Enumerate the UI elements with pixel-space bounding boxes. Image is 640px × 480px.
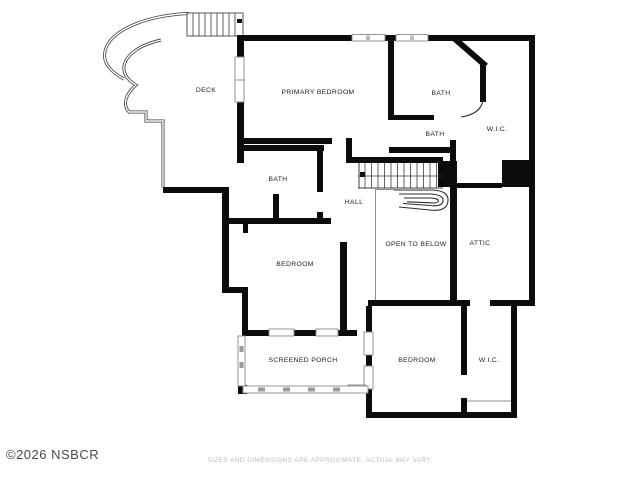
deck-stairs — [187, 13, 243, 36]
floorplan-drawing: DECK PRIMARY BEDROOM BATH W.I.C. BATH BA… — [0, 0, 640, 480]
room-label-bath-2: BATH — [425, 131, 444, 138]
room-label-attic: ATTIC — [470, 240, 491, 247]
room-label-screened-porch: SCREENED PORCH — [268, 357, 337, 364]
room-label-wic-2: W.I.C. — [479, 357, 500, 364]
room-label-hall: HALL — [345, 199, 363, 206]
room-label-bedroom-2: BEDROOM — [398, 357, 436, 364]
room-label-bedroom-1: BEDROOM — [276, 261, 314, 268]
room-label-open-to-below: OPEN TO BELOW — [385, 241, 447, 248]
stair-landing-rail — [394, 190, 448, 210]
interior-stairs — [358, 163, 443, 188]
room-label-deck: DECK — [196, 87, 216, 94]
deck-outline — [105, 14, 189, 189]
room-label-wic-1: W.I.C. — [487, 126, 508, 133]
room-label-bath-1: BATH — [431, 90, 450, 97]
room-label-bath-3: BATH — [268, 176, 287, 183]
disclaimer-text: SIZES AND DIMENSIONS ARE APPROXIMATE, AC… — [0, 457, 640, 464]
floorplan-page: DECK PRIMARY BEDROOM BATH W.I.C. BATH BA… — [0, 0, 640, 480]
room-label-primary-bedroom: PRIMARY BEDROOM — [282, 89, 355, 96]
bath-curved-wall — [461, 100, 483, 117]
